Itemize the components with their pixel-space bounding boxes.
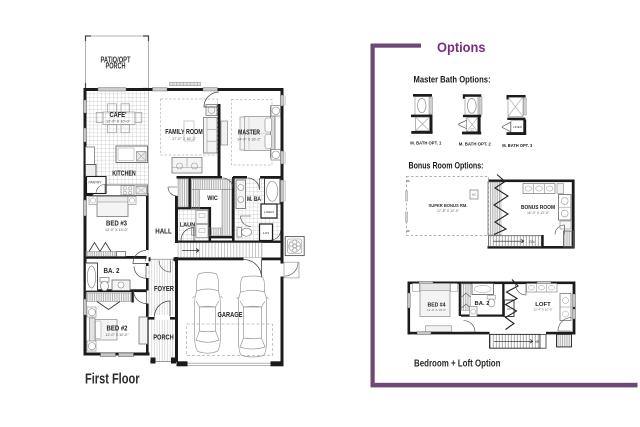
svg-text:PANTRY: PANTRY: [89, 181, 103, 185]
svg-text:M. BA: M. BA: [247, 196, 261, 203]
svg-text:FOYER: FOYER: [154, 284, 174, 293]
svg-text:12'-0" X 10'-0": 12'-0" X 10'-0": [106, 333, 130, 337]
svg-text:PORCH: PORCH: [153, 333, 174, 342]
svg-text:LAUN: LAUN: [180, 223, 196, 229]
svg-text:BA. 2: BA. 2: [475, 301, 490, 307]
svg-text:SUPER BONUS RM.: SUPER BONUS RM.: [429, 203, 468, 208]
svg-text:17'-8" X 12'-0": 17'-8" X 12'-0": [437, 209, 459, 213]
svg-text:BA. 2: BA. 2: [104, 266, 120, 275]
svg-text:GARAGE: GARAGE: [218, 310, 243, 319]
svg-text:12'-0" X 10'-0": 12'-0" X 10'-0": [106, 119, 131, 123]
svg-text:4R: 4R: [535, 340, 540, 344]
svg-text:LIN: LIN: [263, 231, 270, 235]
svg-text:MASTER: MASTER: [238, 128, 260, 137]
svg-text:WIC: WIC: [207, 195, 218, 202]
svg-text:CAFE': CAFE': [110, 110, 127, 119]
svg-text:A/C: A/C: [472, 193, 476, 197]
svg-text:M. BATH OPT. 3: M. BATH OPT. 3: [502, 143, 532, 149]
svg-text:First Floor: First Floor: [85, 372, 140, 388]
svg-text:14'-0" X 16'-2": 14'-0" X 16'-2": [237, 137, 262, 141]
svg-text:16'-0" X 12'-0": 16'-0" X 12'-0": [527, 211, 549, 215]
svg-text:DN: DN: [530, 240, 535, 244]
svg-text:LINEN: LINEN: [513, 125, 522, 129]
svg-text:12'-0" X 10'-0": 12'-0" X 10'-0": [427, 308, 446, 312]
svg-text:KITCHEN: KITCHEN: [112, 168, 136, 177]
svg-text:Master Bath Options:: Master Bath Options:: [414, 75, 491, 86]
svg-text:M. BATH OPT. 1: M. BATH OPT. 1: [410, 141, 441, 147]
svg-text:Bedroom + Loft Option: Bedroom + Loft Option: [414, 359, 501, 370]
svg-text:Options: Options: [437, 39, 486, 55]
svg-text:BED #2: BED #2: [107, 324, 128, 333]
svg-text:PORCH: PORCH: [106, 62, 126, 71]
svg-text:LINEN: LINEN: [264, 210, 274, 214]
svg-text:12'-0" X 10'-0": 12'-0" X 10'-0": [105, 228, 129, 232]
svg-text:Bonus Room Options:: Bonus Room Options:: [409, 160, 484, 171]
svg-text:M. BATH OPT. 2: M. BATH OPT. 2: [459, 142, 491, 148]
svg-text:BED #3: BED #3: [106, 219, 127, 228]
svg-text:HALL: HALL: [155, 227, 172, 236]
svg-text:12'-4" X 10'-0": 12'-4" X 10'-0": [534, 308, 553, 312]
